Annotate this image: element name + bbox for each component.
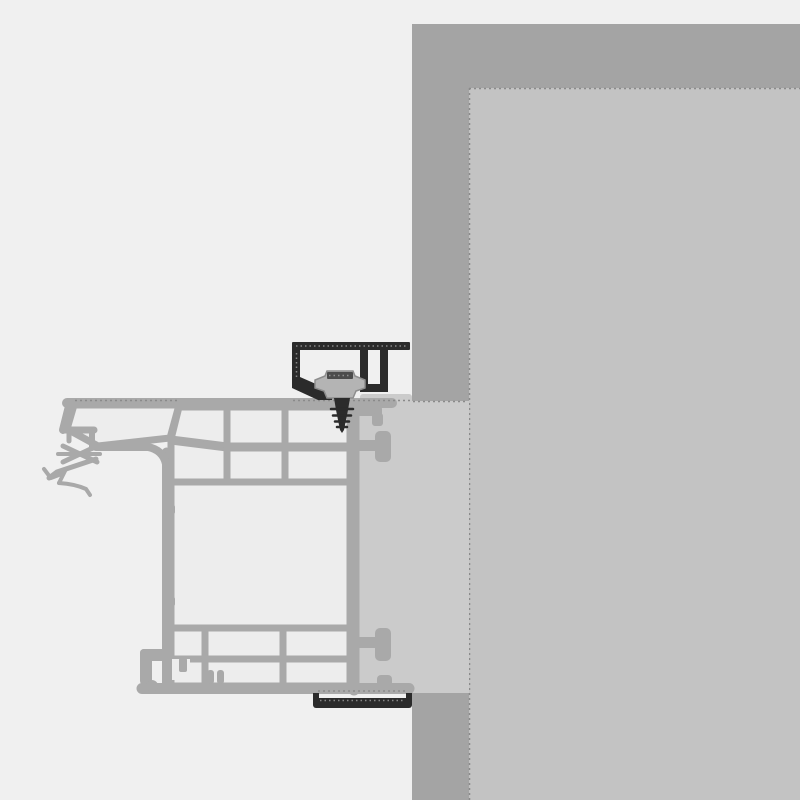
diagram-stage bbox=[0, 0, 800, 800]
anchor-hook-top-tab bbox=[372, 413, 383, 426]
seal-flap-tip bbox=[44, 469, 50, 477]
chamber-row1-c2 bbox=[227, 407, 285, 446]
foot-left-side bbox=[140, 649, 152, 685]
chamber-row3-c1 bbox=[171, 628, 205, 659]
bottom-stud-1 bbox=[207, 670, 214, 684]
bottom-stud-2 bbox=[217, 670, 224, 684]
glazing-shelf-web bbox=[96, 447, 166, 464]
anchor-stub-bottom bbox=[377, 675, 392, 691]
wall-inner-reveal bbox=[469, 88, 800, 800]
bottom-bracket-left-lip bbox=[313, 693, 319, 703]
window-frame-profile bbox=[44, 401, 410, 693]
screw-head-hatch bbox=[327, 372, 353, 379]
chamber-top-left bbox=[67, 405, 179, 446]
glazing-gasket-and-seal bbox=[44, 430, 100, 495]
sill-groove-tooth bbox=[179, 658, 187, 672]
chamber-main bbox=[171, 482, 350, 628]
installation-gap bbox=[358, 394, 469, 693]
left-wall-nub-upper bbox=[167, 505, 175, 514]
chamber-row2-c3 bbox=[285, 448, 350, 482]
chamber-row3-c2 bbox=[205, 628, 283, 659]
wall-section bbox=[412, 24, 800, 800]
anchor-t-clip-upper-cap bbox=[375, 431, 391, 462]
chamber-row4-c3 bbox=[283, 659, 350, 686]
anchor-t-clip-upper-stem bbox=[354, 440, 378, 451]
installation-cross-section-diagram bbox=[0, 0, 800, 800]
left-wall-nub-lower bbox=[167, 597, 175, 606]
chamber-row2-c1 bbox=[171, 441, 227, 482]
anchor-t-clip-lower-cap bbox=[375, 628, 391, 661]
bottom-bracket-channel bbox=[313, 698, 412, 708]
bottom-bracket-right-lip bbox=[406, 693, 412, 703]
foot-bulge bbox=[146, 680, 158, 692]
chamber-row4-c2 bbox=[205, 659, 283, 686]
seal-flap-tail bbox=[59, 483, 90, 495]
chamber-row3-c3 bbox=[283, 628, 350, 659]
anchor-t-clip-lower-stem bbox=[354, 637, 378, 648]
bottom-support-bracket bbox=[313, 693, 412, 708]
chamber-row2-c2 bbox=[227, 448, 285, 482]
